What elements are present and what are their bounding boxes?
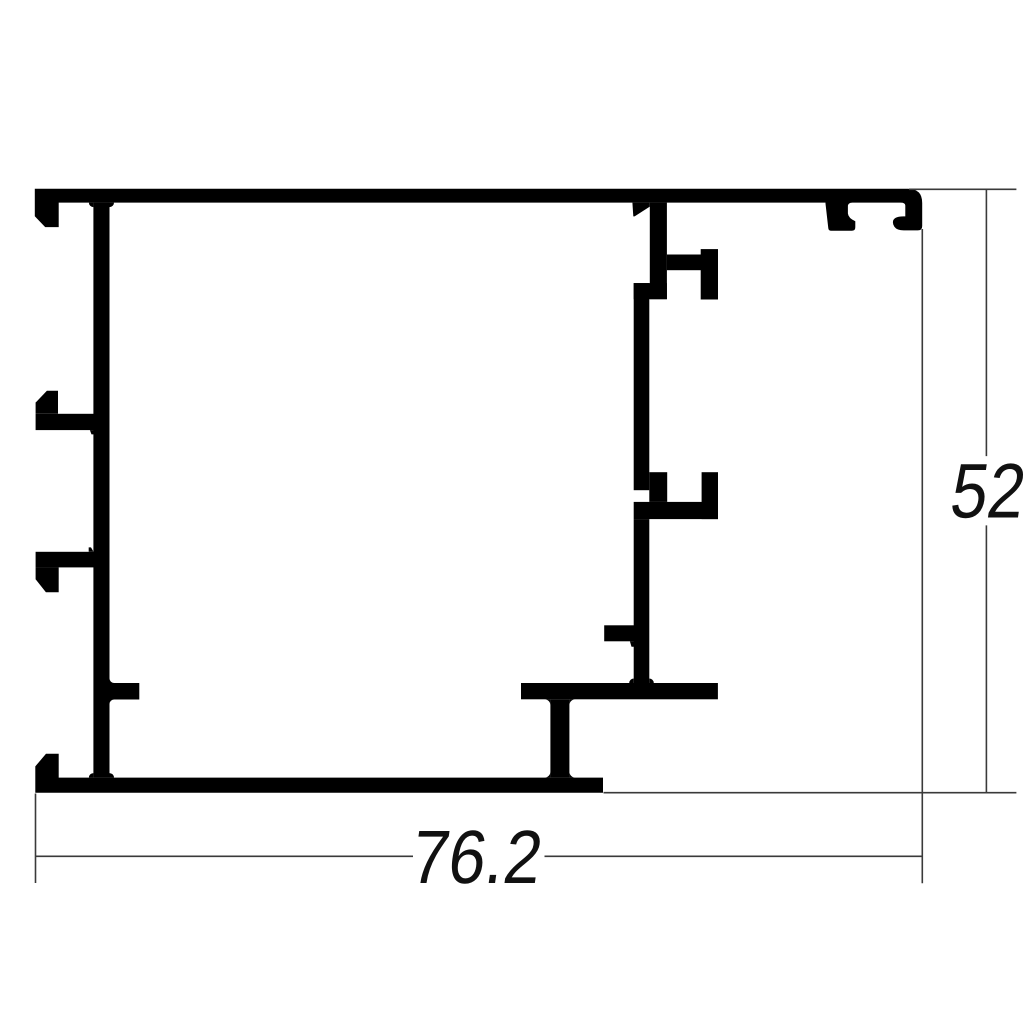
svg-text:76.2: 76.2: [406, 815, 548, 899]
svg-text:52: 52: [946, 448, 1024, 535]
